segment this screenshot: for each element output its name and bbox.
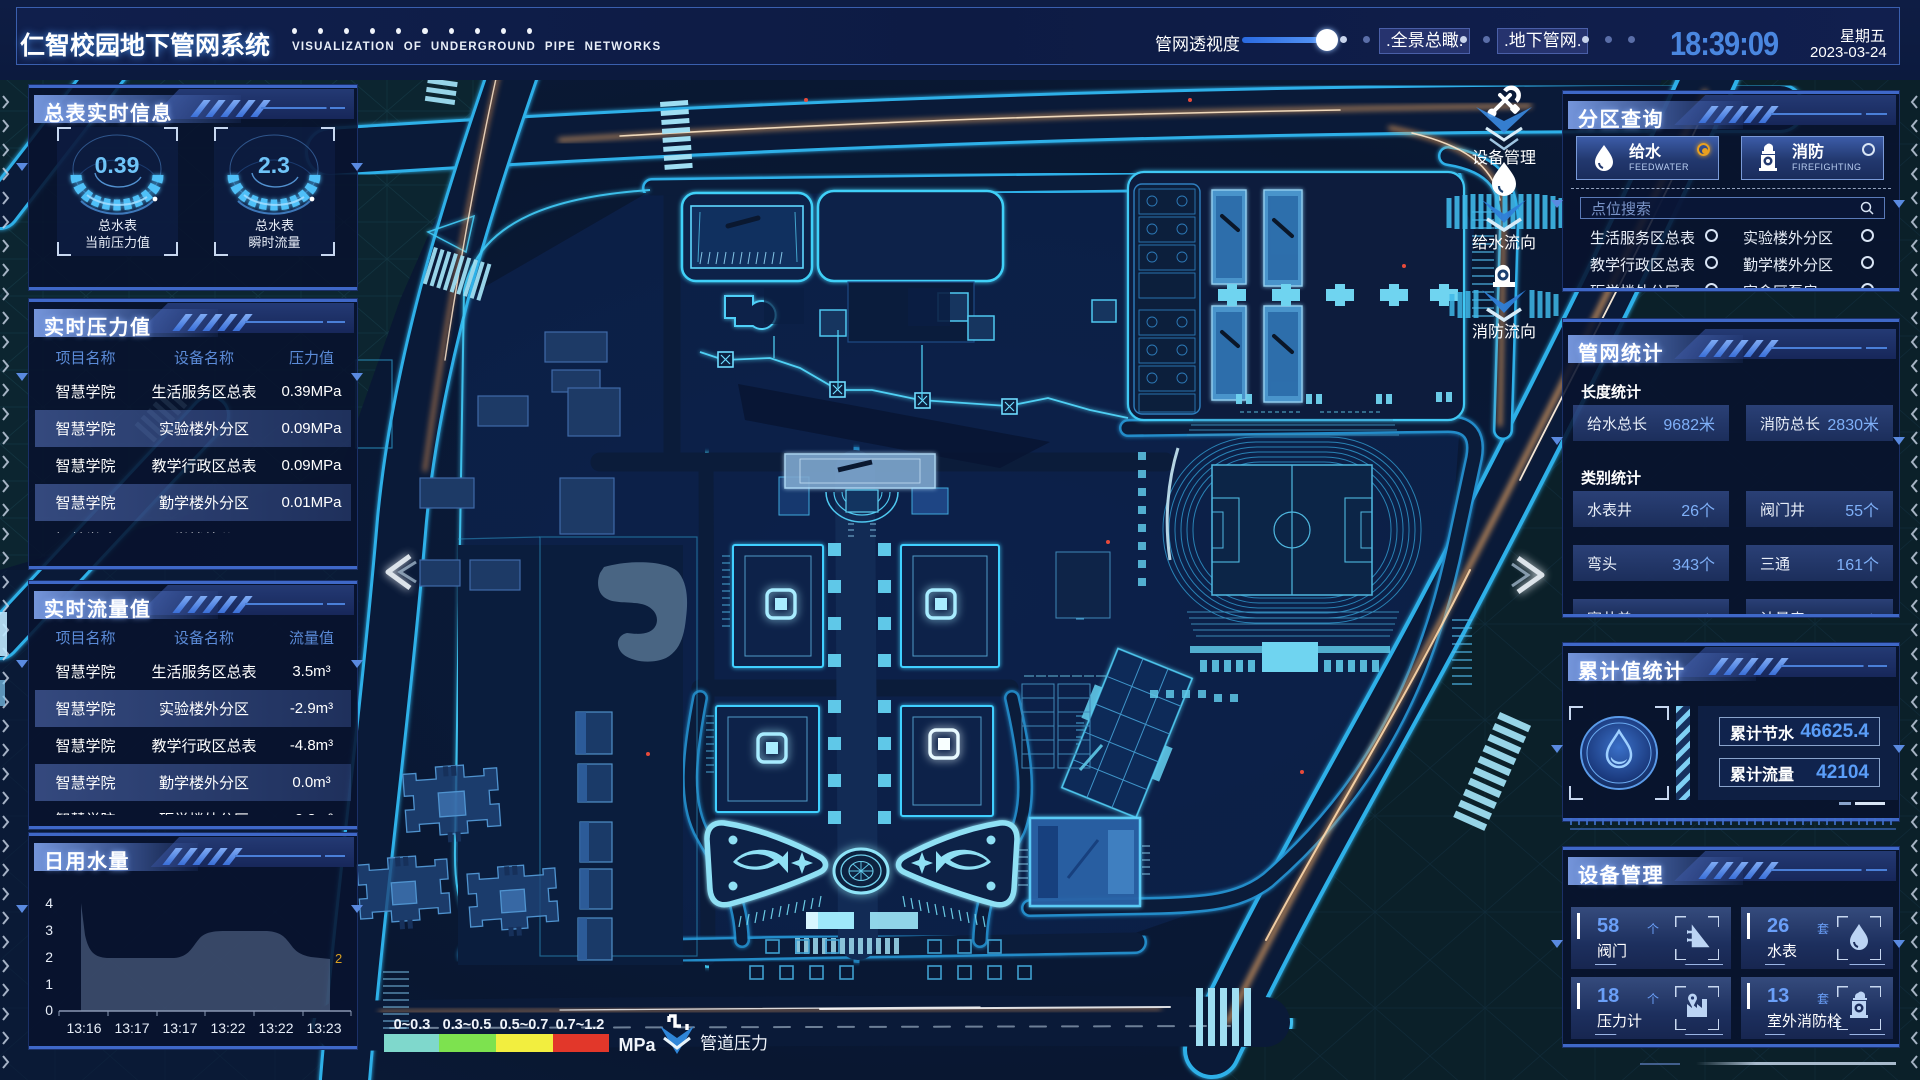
svg-text:0: 0: [45, 1002, 53, 1018]
svg-text:13:17: 13:17: [162, 1020, 197, 1036]
svg-text:0.3~0.5: 0.3~0.5: [443, 1017, 492, 1033]
svg-text:13:22: 13:22: [258, 1020, 293, 1036]
svg-text:2.3: 2.3: [258, 152, 290, 178]
svg-text:13:23: 13:23: [306, 1020, 341, 1036]
svg-text:3: 3: [45, 922, 53, 938]
svg-text:13:22: 13:22: [210, 1020, 245, 1036]
svg-text:13:16: 13:16: [66, 1020, 101, 1036]
svg-text:0.39: 0.39: [95, 152, 140, 178]
svg-text:管道压力: 管道压力: [700, 1034, 768, 1053]
svg-text:4: 4: [45, 895, 53, 911]
svg-text:消防流向: 消防流向: [1472, 323, 1536, 341]
svg-text:1: 1: [45, 976, 53, 992]
svg-text:2: 2: [45, 949, 53, 965]
svg-text:13:17: 13:17: [114, 1020, 149, 1036]
svg-text:0.7~1.2: 0.7~1.2: [556, 1017, 605, 1033]
svg-text:0~0.3: 0~0.3: [394, 1017, 431, 1033]
svg-text:给水流向: 给水流向: [1472, 234, 1536, 252]
svg-text:MPa: MPa: [618, 1035, 656, 1055]
svg-text:0.5~0.7: 0.5~0.7: [500, 1017, 549, 1033]
svg-text:2: 2: [335, 951, 342, 966]
